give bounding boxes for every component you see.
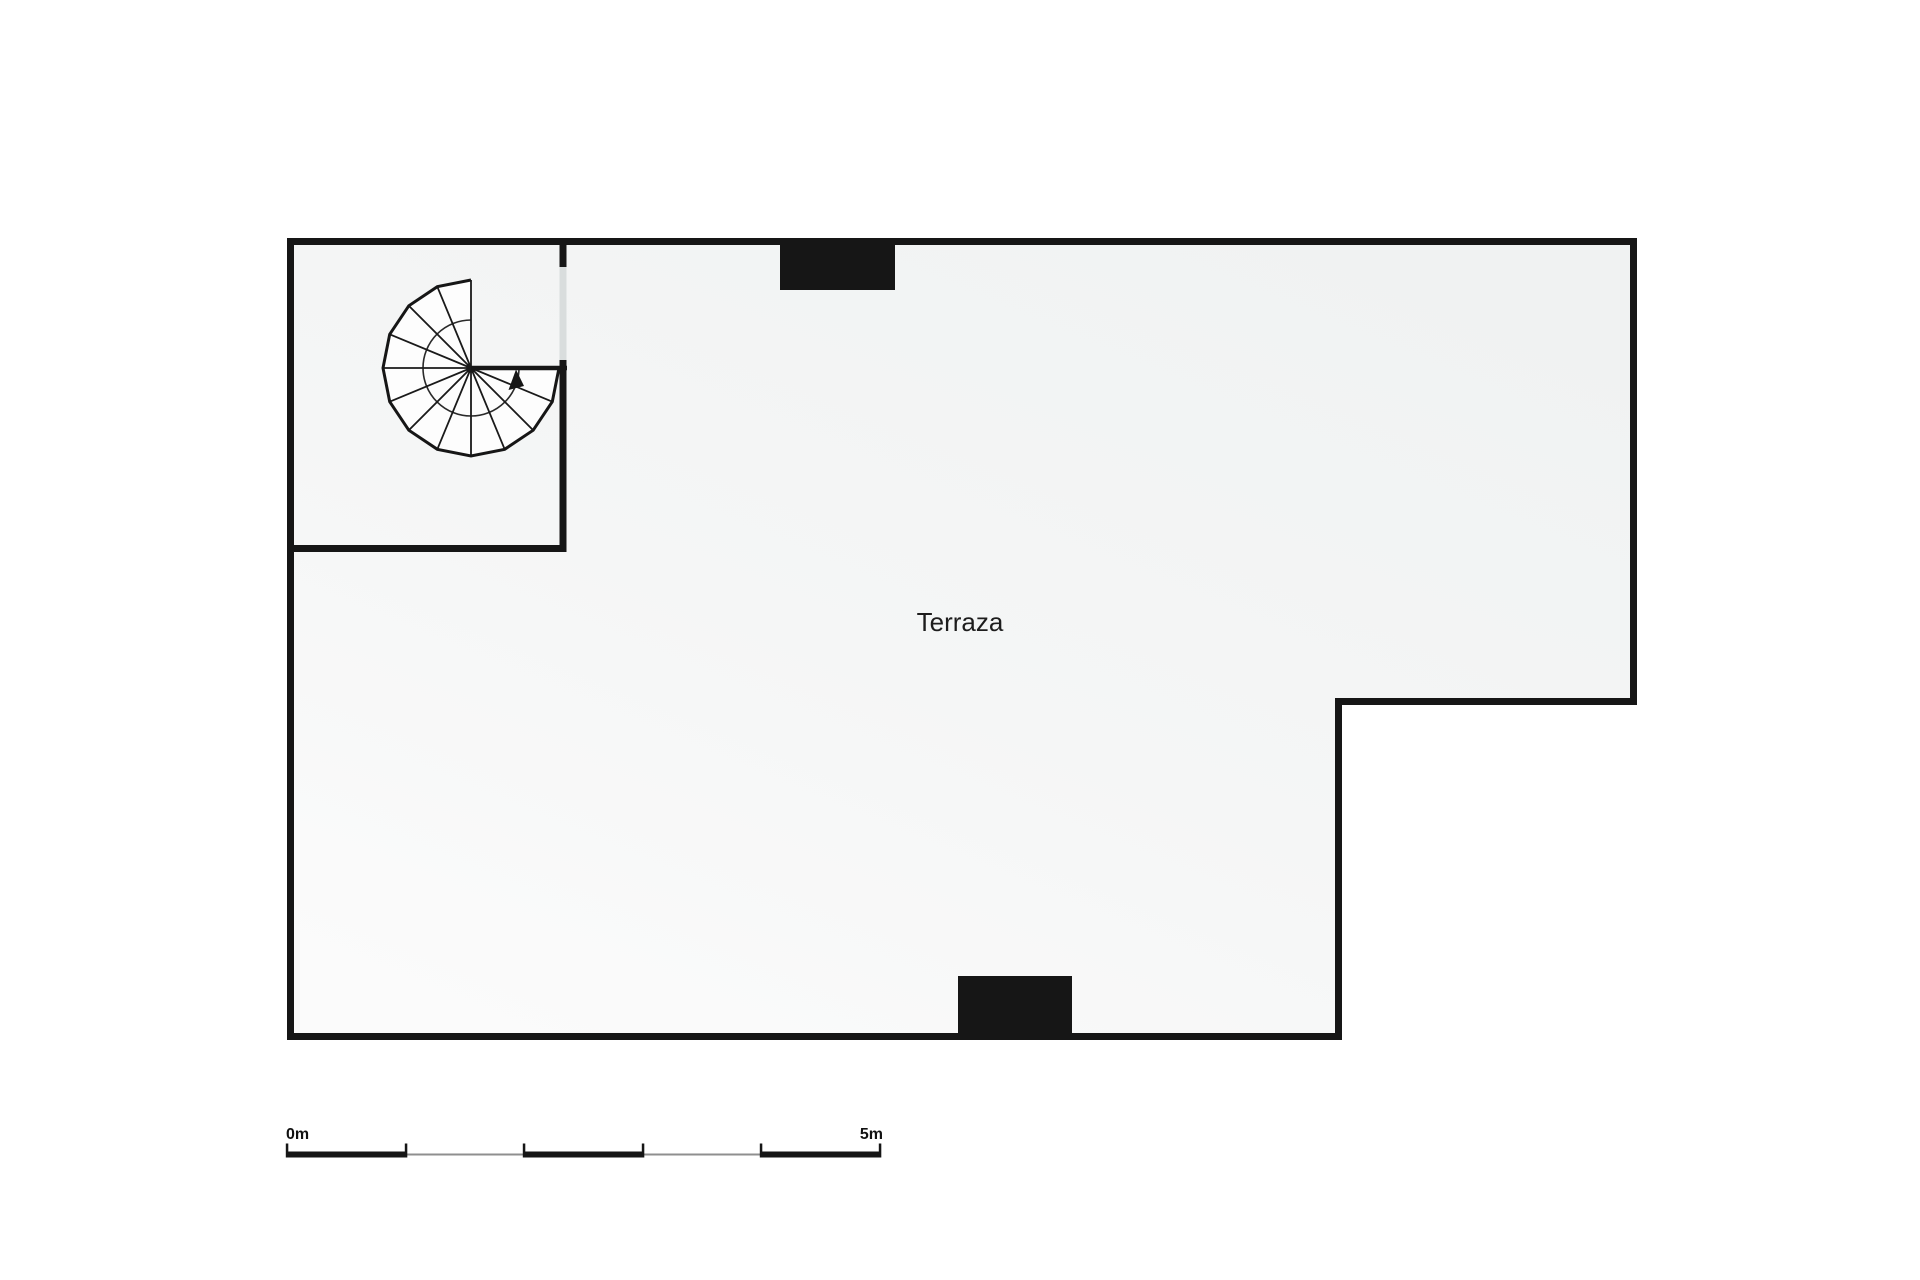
- scale-bar-tick: [523, 1144, 526, 1158]
- top-wall-block: [780, 238, 895, 290]
- scale-start-label: 0m: [286, 1126, 309, 1143]
- scale-end-label: 5m: [860, 1126, 883, 1143]
- scale-bar-thick-segment: [524, 1152, 643, 1158]
- scale-bar-thick-segment: [287, 1152, 406, 1158]
- scale-bar-tick: [642, 1144, 645, 1158]
- scale-bar-tick: [760, 1144, 763, 1158]
- floor-plan-page: Terraza 0m 5m: [0, 0, 1920, 1280]
- scale-bar-thick-segment: [761, 1152, 880, 1158]
- scale-bar-tick: [286, 1144, 289, 1158]
- terrace-floor: [291, 242, 1634, 1037]
- floor-plan-drawing: Terraza 0m 5m: [0, 0, 1920, 1280]
- scale-bar-tick: [405, 1144, 408, 1158]
- room-label: Terraza: [917, 607, 1004, 637]
- scale-bar-thin-segment: [643, 1154, 761, 1156]
- wall-opening: [560, 267, 567, 360]
- bottom-wall-block: [958, 976, 1072, 1040]
- scale-bar-thin-segment: [406, 1154, 524, 1156]
- scale-bar-tick: [879, 1144, 882, 1158]
- scale-bar: 0m 5m: [286, 1126, 883, 1158]
